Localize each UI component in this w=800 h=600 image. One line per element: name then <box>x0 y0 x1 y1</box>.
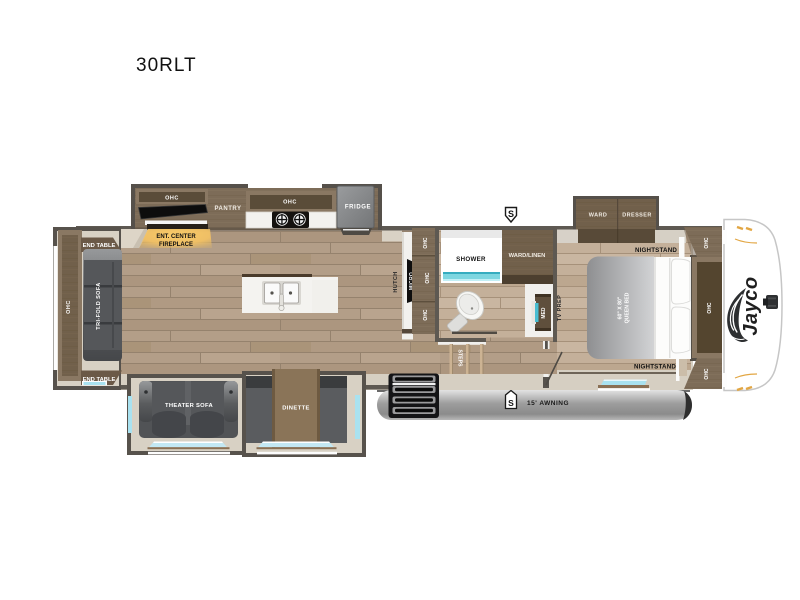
svg-text:END TABLE: END TABLE <box>83 243 116 249</box>
svg-text:FIREPLACE: FIREPLACE <box>159 242 193 248</box>
svg-text:WARD/LINEN: WARD/LINEN <box>509 253 546 259</box>
svg-text:WARD: WARD <box>589 213 607 219</box>
svg-text:ENT. CENTER: ENT. CENTER <box>156 234 196 240</box>
svg-text:OHC: OHC <box>704 368 710 380</box>
svg-text:NIGHTSTAND: NIGHTSTAND <box>635 247 677 254</box>
svg-text:FRIDGE: FRIDGE <box>345 205 371 211</box>
svg-text:OHC: OHC <box>165 196 179 202</box>
svg-text:30RLT: 30RLT <box>136 55 197 76</box>
svg-text:TRI-FOLD SOFA: TRI-FOLD SOFA <box>96 282 102 329</box>
svg-text:OHC: OHC <box>66 300 72 314</box>
svg-text:60" X 80": 60" X 80" <box>618 296 624 319</box>
svg-text:15' AWNING: 15' AWNING <box>527 400 569 407</box>
svg-text:S: S <box>508 398 514 408</box>
svg-text:OHC: OHC <box>707 302 713 314</box>
svg-text:OHC: OHC <box>283 200 297 206</box>
svg-text:OHC: OHC <box>423 237 429 249</box>
svg-text:MED: MED <box>541 307 547 319</box>
svg-text:HUTCH: HUTCH <box>393 271 399 292</box>
svg-text:S: S <box>508 209 514 219</box>
svg-text:PANTRY: PANTRY <box>215 206 242 212</box>
svg-text:SHOWER: SHOWER <box>456 256 486 263</box>
svg-text:OHC: OHC <box>704 237 710 249</box>
svg-text:NIGHTSTAND: NIGHTSTAND <box>634 364 676 371</box>
svg-text:QUEEN BED: QUEEN BED <box>625 292 631 323</box>
svg-text:THEATER SOFA: THEATER SOFA <box>165 403 213 409</box>
svg-text:TV PREP: TV PREP <box>557 295 563 321</box>
svg-text:OHC: OHC <box>425 272 431 284</box>
svg-text:STEPS: STEPS <box>457 349 463 367</box>
svg-text:Jayco: Jayco <box>740 276 762 335</box>
svg-text:DRESSER: DRESSER <box>622 213 651 219</box>
svg-text:DINETTE: DINETTE <box>282 406 310 412</box>
svg-text:OHC: OHC <box>423 309 429 321</box>
